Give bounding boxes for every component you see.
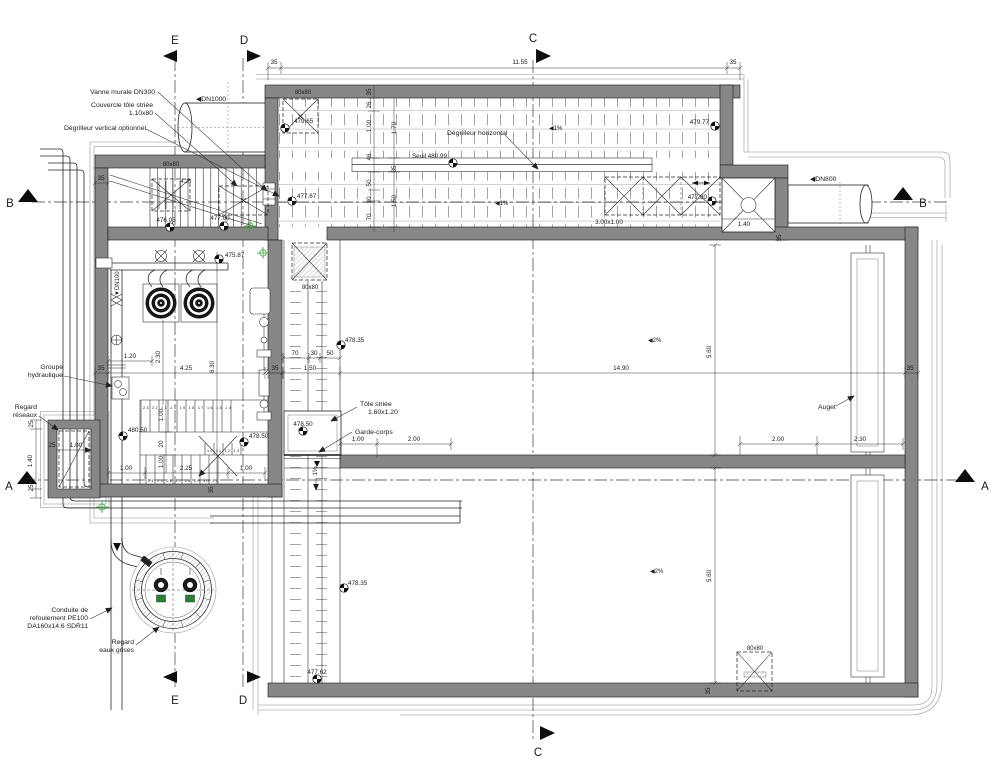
pump-2 — [181, 284, 217, 322]
dim-2-30-v: 2.30 — [155, 350, 162, 363]
dim-11-55: 11.55 — [512, 59, 528, 66]
marker-e-top: E — [171, 35, 179, 47]
dim-35-v2: 35 — [391, 165, 398, 173]
dim-1-00-basin: 1.00 — [352, 436, 365, 443]
dim-1-50-h: 1.50 — [304, 365, 317, 372]
dim-35-sump: 35 — [776, 234, 783, 242]
dim-5-60-lower: 5.60 — [706, 569, 713, 582]
regard-eaux-grises — [130, 547, 216, 633]
access-channel — [284, 245, 340, 683]
dim-2-30-basin: 2.30 — [854, 436, 867, 443]
channel-grating — [272, 98, 720, 683]
dim-30-v: 30 — [366, 196, 373, 204]
label-degrilleur-vertical: Dégrilleur vertical optionnel — [64, 125, 146, 132]
level-478-50-a: 478.50 — [249, 433, 269, 440]
label-slope-2pct-lower: ◀2% — [650, 569, 664, 575]
dim-70-v: 70 — [366, 213, 373, 221]
treads-lower: 24 25 26 27 28 29 30 31 — [148, 479, 218, 483]
marker-d-bottom-icon — [247, 671, 261, 683]
dim-1-00-st-r: 1.00 — [240, 465, 253, 472]
marker-d-top-icon — [247, 50, 261, 62]
level-480-50: 480.50 — [128, 427, 148, 434]
marker-b-left-icon — [18, 189, 38, 202]
trappe-80x80-channel — [285, 243, 339, 281]
label-groupe-2: hydraulique — [28, 372, 63, 379]
auget-upper — [851, 253, 884, 452]
marker-a-left: A — [5, 481, 13, 493]
label-tole-striee-1: Tôle striée — [360, 401, 392, 408]
label-conduite-2: refoulement PE100 — [30, 615, 88, 622]
dim-35-basin-r: 35 — [906, 365, 914, 372]
label-dn800: ◀DN800 — [810, 176, 837, 183]
dn1000-pipe — [178, 82, 272, 162]
seuil-bar — [352, 158, 652, 165]
dim-20-v: 20 — [158, 440, 165, 448]
level-475-87: 475.87 — [225, 252, 245, 259]
dn800-pipe — [788, 182, 872, 226]
level-477-80: 477.80 — [688, 194, 708, 201]
dim-1-00-rr: 1.00 — [70, 442, 83, 449]
level-478-50-b: 478.50 — [293, 421, 313, 428]
label-degrilleur-horizontal: Dégrilleur horizontal — [447, 130, 508, 137]
label-groupe-1: Groupe — [40, 364, 63, 371]
dim-35-stair: 35 — [97, 175, 105, 182]
dim-3x1: 3.00x1.00 — [595, 219, 623, 226]
label-garde-corps: Garde-corps — [355, 429, 393, 436]
level-479-77: 479.77 — [690, 119, 710, 126]
marker-c-bottom: C — [534, 747, 542, 759]
dim-2-00-basin-r: 2.00 — [772, 436, 785, 443]
marker-b-left: B — [6, 198, 14, 210]
dim-50-h: 50 — [326, 350, 334, 357]
dim-1-40-rr: 1.40 — [27, 454, 34, 467]
dim-25-b: 25 — [28, 484, 35, 492]
level-479-65: 479.65 — [294, 118, 314, 125]
wall-top — [265, 85, 740, 98]
label-conduite-1: Conduite de — [51, 607, 88, 614]
dim-25-a: 25 — [28, 420, 35, 428]
dim-46-v: 46 — [366, 153, 373, 161]
dim-35-chan: 35 — [271, 365, 279, 372]
wall-stair-divider — [108, 227, 268, 240]
dim-30-h: 30 — [310, 350, 318, 357]
dim-50-v: 50 — [366, 179, 373, 187]
dim-14-90: 14.90 — [613, 365, 629, 372]
marker-c-top-icon — [536, 49, 551, 63]
marker-a-right-icon — [955, 469, 975, 482]
dim-80x80-t4: 80x80 — [302, 285, 319, 291]
marker-b-right-icon — [893, 187, 913, 200]
label-dn1000: ◀DN1000 — [196, 96, 226, 103]
auget-lower — [851, 475, 884, 677]
marker-a-right: A — [981, 481, 989, 493]
dim-80x80-t1: 80x80 — [295, 90, 312, 96]
dim-35-top-l: 35 — [270, 59, 278, 66]
label-auget: Auget — [818, 404, 836, 411]
label-regard-reseaux-1: Regard — [15, 404, 38, 411]
label-dn100: ▼DN100 — [115, 271, 121, 296]
wall-basin-bottom — [268, 683, 918, 697]
treads-mid: 10 11 12 13 — [207, 449, 239, 453]
dim-1-00-v: 1.00 — [366, 119, 373, 132]
dim-4-25-stair: 4.25 — [181, 179, 192, 185]
trappe-80x80-bottom — [737, 652, 772, 691]
floor-plan-page: E D C C E D B B A A Vanne murale DN300 C… — [0, 0, 1000, 762]
level-477-67: 477.67 — [297, 193, 317, 200]
dim-70-h: 70 — [291, 350, 299, 357]
level-seuil: Seuil 480.99 — [412, 153, 448, 160]
label-conduite-3: DA160x14.6 SDR11 — [27, 623, 88, 630]
dim-5-60-upper: 5.60 — [706, 345, 713, 358]
groupe-hydraulique-unit — [112, 377, 129, 399]
level-478-35-b: 478.35 — [348, 580, 368, 587]
dim-6-30-v: 6.30 — [209, 360, 216, 373]
label-slope-1pct-b: ◀1% — [495, 201, 509, 207]
level-478-35-a: 478.35 — [345, 337, 365, 344]
dim-1-70-v: 1.70 — [391, 121, 398, 134]
dim-26-v: 26 — [366, 101, 373, 109]
wall-basin-top — [327, 227, 918, 240]
dim-1-00-st-l: 1.00 — [120, 465, 133, 472]
level-477-62: 477.62 — [307, 669, 327, 676]
dim-1-20: 1.20 — [124, 353, 137, 360]
label-couvercle-1: Couvercle tôle striée — [91, 102, 153, 109]
marker-d-top: D — [240, 35, 248, 47]
dim-1-50-v: 1.50 — [391, 194, 398, 207]
dim-80x80-t2: 80x80 — [163, 162, 180, 168]
dim-35-bot: 35 — [705, 687, 712, 695]
coffret — [250, 288, 270, 314]
dim-35-v1: 35 — [366, 88, 373, 96]
dim-80x80-t5: 80x80 — [747, 646, 764, 652]
marker-c-top: C — [529, 33, 537, 45]
dim-35-top-r: 35 — [729, 59, 737, 66]
wall-basin-right — [905, 227, 918, 697]
level-476-05: 476.05 — [156, 217, 176, 224]
marker-e-bottom: E — [171, 695, 179, 707]
flow-arrow-down — [113, 543, 121, 551]
label-couvercle-2: 1.10x80 — [129, 110, 153, 117]
marker-d-bottom: D — [239, 695, 247, 707]
marker-a-left-icon — [17, 471, 37, 484]
label-slope-1pct-a: ◀1% — [549, 126, 563, 132]
dim-35-prb: 35 — [208, 486, 215, 494]
marker-e-bottom-icon — [163, 671, 177, 683]
dim-35-pr-l: 35 — [97, 365, 105, 372]
dim-25-c: 25 — [48, 442, 56, 449]
marker-c-bottom-icon — [540, 726, 555, 740]
dim-1-00-fl: 1.00 — [158, 408, 165, 421]
dim-2-00-basin-l: 2.00 — [408, 436, 421, 443]
label-regard-eaux-2: eaux grises — [99, 647, 134, 654]
marker-e-top-icon — [163, 50, 177, 62]
level-477-00: 477.00 — [210, 215, 230, 222]
dim-1-40-sump: 1.40 — [738, 221, 751, 228]
treads-upper: 23 22 21 20 19 18 17 16 15 14 — [143, 406, 231, 410]
label-vanne-murale: Vanne murale DN300 — [90, 89, 155, 96]
dim-2-25-st: 2.25 — [180, 465, 193, 472]
floor-plan-drawing: E D C C E D B B A A Vanne murale DN300 C… — [0, 0, 1000, 762]
wall-left-upper — [265, 98, 278, 240]
label-regard-reseaux-2: réseaux — [13, 412, 38, 419]
label-slope-2pct-upper: ◀2% — [648, 338, 662, 344]
pump-1 — [143, 284, 179, 322]
trappe-degrilleur-vertical — [219, 186, 268, 215]
wall-dividing — [340, 455, 905, 468]
stair-room-top — [110, 168, 275, 227]
regard-reseaux — [57, 431, 91, 487]
label-regard-eaux-1: Regard — [112, 639, 135, 646]
dim-4-25-pr: 4.25 — [180, 365, 193, 372]
label-tole-striee-2: 1.60x1.20 — [368, 409, 398, 416]
marker-b-right: B — [919, 198, 927, 210]
dim-1-00-land: 1.00 — [158, 455, 165, 468]
wall-pumproom-bottom — [95, 484, 282, 497]
dim-1pct-chan: 1% — [312, 466, 319, 476]
